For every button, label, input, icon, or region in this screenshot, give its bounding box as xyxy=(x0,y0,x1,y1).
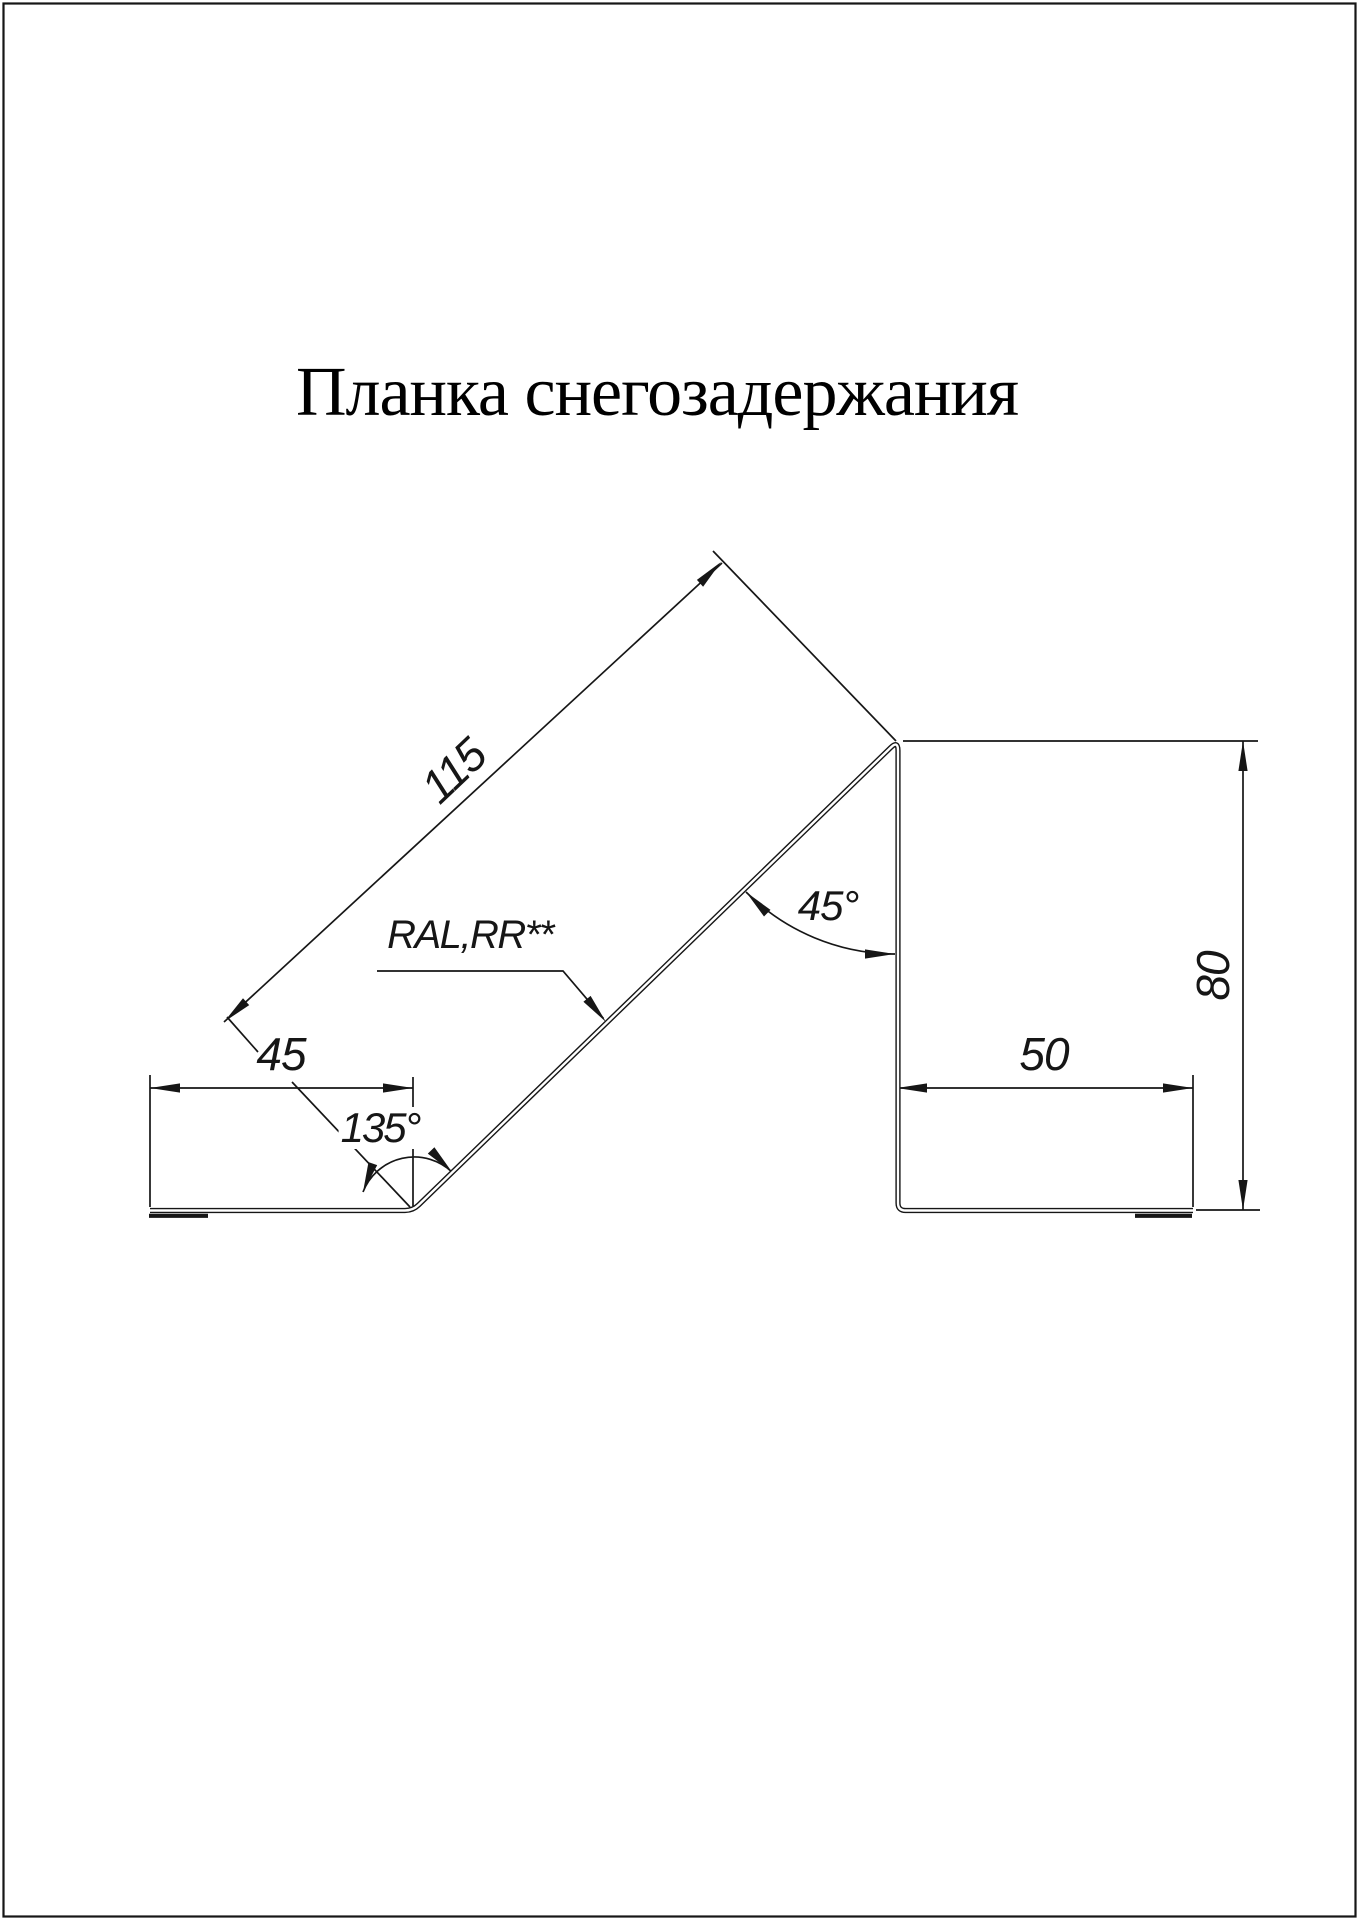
page-border-frame xyxy=(4,4,1356,1917)
technical-drawing-canvas xyxy=(0,0,1359,1920)
profile-geometry xyxy=(149,745,1193,1216)
dim-label-45deg: 45° xyxy=(798,885,859,927)
arrow-115-upper xyxy=(697,562,721,587)
page-title: Планка снегозадержания xyxy=(0,358,1314,428)
coating-label: RAL,RR** xyxy=(387,915,553,955)
profile-core xyxy=(150,745,1193,1211)
dim-label-50: 50 xyxy=(1019,1031,1068,1077)
ext-line-115-upper xyxy=(713,551,896,741)
arrow-80-bottom xyxy=(1238,1180,1247,1210)
dim-label-45-left: 45 xyxy=(256,1031,305,1077)
dim-label-135deg: 135° xyxy=(339,1107,422,1149)
ext-tick-115-lower xyxy=(227,1017,258,1052)
arrow-coating-leader xyxy=(583,996,606,1022)
arrow-50-left xyxy=(897,1083,927,1092)
arrow-50-right xyxy=(1163,1083,1193,1092)
drawing-sheet: Планка снегозадержания 115 45 135° 45° 5… xyxy=(0,0,1359,1920)
arrow-arc45-upper xyxy=(746,892,771,917)
arrow-45-right xyxy=(383,1083,413,1092)
profile-outline xyxy=(150,745,1193,1211)
arrow-arc45-lower xyxy=(865,949,895,958)
arrow-115-lower xyxy=(224,998,249,1022)
dim-label-80: 80 xyxy=(1190,951,1236,1000)
arrow-45-left xyxy=(150,1083,180,1092)
arrow-80-top xyxy=(1238,741,1247,771)
arrow-arc135-left xyxy=(363,1162,377,1192)
leader-line-coating xyxy=(377,971,604,1019)
dimension-arrows xyxy=(150,562,1248,1210)
dimension-lines xyxy=(150,551,1260,1210)
